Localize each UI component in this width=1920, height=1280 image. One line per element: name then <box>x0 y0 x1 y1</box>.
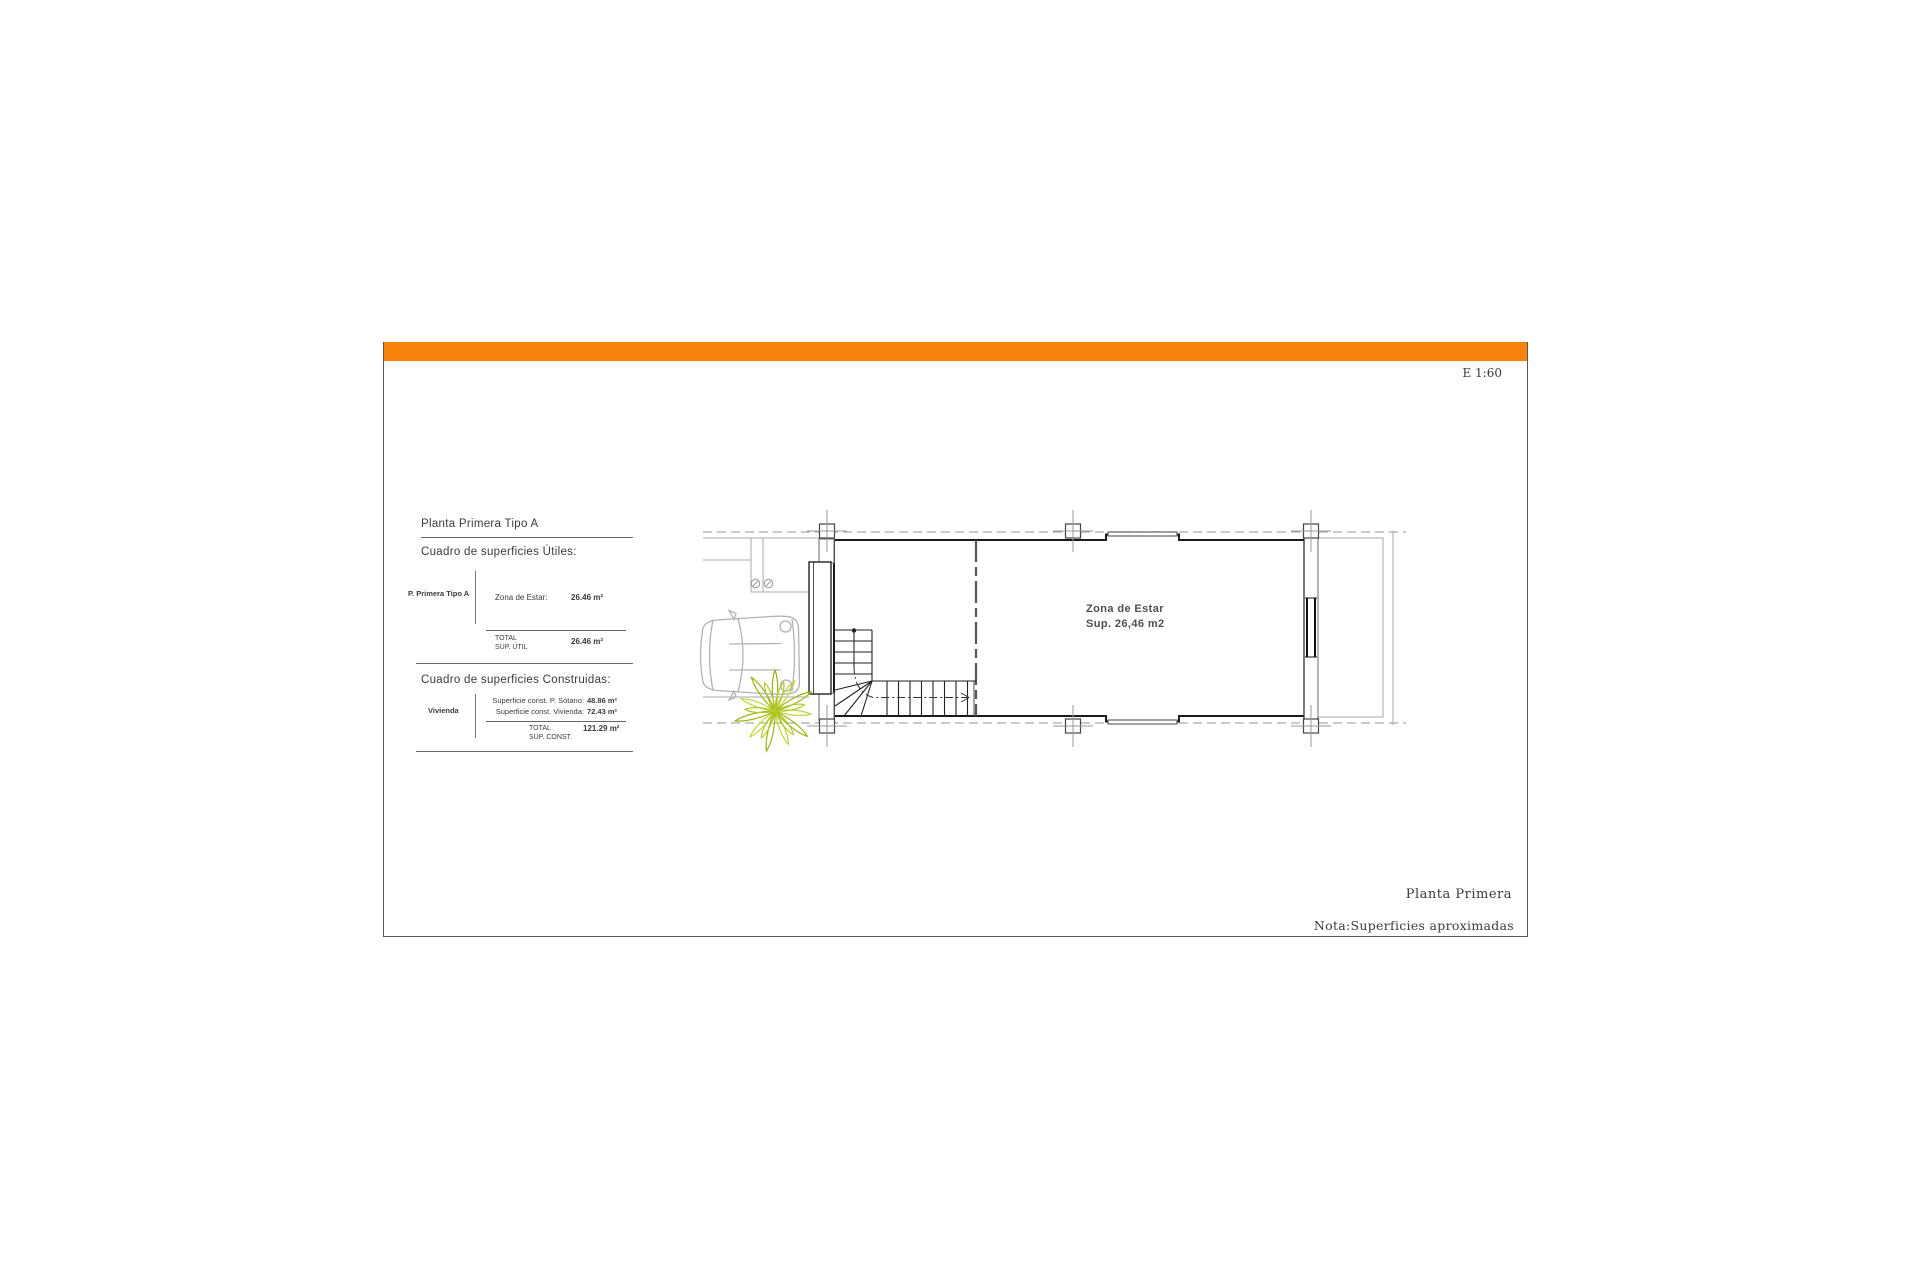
construidas-row-label: Superficie const. P. Sótano: <box>492 696 584 705</box>
construidas-row: Superficie const. Vivienda:72.43 m² <box>479 707 617 716</box>
construidas-total-label: TOTAL <box>529 725 551 732</box>
column-marker <box>1053 510 1093 552</box>
room-area-text: Sup. 26,46 m2 <box>1086 618 1165 630</box>
plan-name-label: Planta Primera <box>1406 887 1512 902</box>
utiles-total-sublabel: SUP. ÚTIL <box>495 644 528 651</box>
column-markers <box>807 510 1331 747</box>
room-name-text: Zona de Estar <box>1086 603 1164 615</box>
utiles-total-value: 26.46 m² <box>571 637 603 646</box>
divider <box>416 751 633 752</box>
stair-walk-line <box>854 634 969 702</box>
construidas-total-sublabel: SUP. CONST. <box>529 734 572 741</box>
column-marker <box>1053 705 1093 747</box>
construidas-row-value: 48.86 m² <box>587 696 617 705</box>
divider <box>475 694 476 738</box>
construidas-heading: Cuadro de superficies Construidas: <box>421 674 611 686</box>
utiles-row-value: 26.46 m² <box>571 593 603 602</box>
scale-label: E 1:60 <box>1462 366 1502 380</box>
accent-header-bar <box>384 342 1527 361</box>
garage-door <box>809 539 834 721</box>
utiles-group-label: P. Primera Tipo A <box>408 589 469 598</box>
right-pier <box>1304 525 1318 732</box>
floor-plan-drawing: Zona de Estar Sup. 26,46 m2 <box>691 500 1416 760</box>
utiles-heading: Cuadro de superficies Útiles: <box>421 546 577 558</box>
column-marker <box>1291 705 1331 747</box>
room-walls <box>834 535 1304 722</box>
construidas-total-value: 121.29 m² <box>583 724 619 733</box>
divider <box>486 721 626 722</box>
staircase <box>835 628 976 716</box>
room-label: Zona de Estar Sup. 26,46 m2 <box>1086 603 1165 630</box>
car-icon <box>701 611 800 701</box>
tables-title: Planta Primera Tipo A <box>421 518 539 530</box>
divider <box>416 663 633 664</box>
drawing-sheet: E 1:60 Planta Primera Tipo A Cuadro de s… <box>383 342 1528 937</box>
construidas-group-label: Vivienda <box>428 706 459 715</box>
construidas-row: Superficie const. P. Sótano:48.86 m² <box>479 696 617 705</box>
utiles-row-label: Zona de Estar: <box>495 593 547 602</box>
column-marker <box>807 510 847 552</box>
column-marker <box>1291 510 1331 552</box>
note-label: Nota:Superficies aproximadas <box>1314 918 1514 933</box>
construidas-row-value: 72.43 m² <box>587 707 617 716</box>
column-marker <box>807 705 847 747</box>
utility-meter-icon <box>751 579 772 587</box>
terrace-outline <box>1318 531 1393 725</box>
construidas-row-label: Superficie const. Vivienda: <box>496 707 584 716</box>
divider <box>486 630 626 631</box>
divider <box>475 571 476 624</box>
plant-icon <box>735 670 813 752</box>
utiles-total-label: TOTAL <box>495 635 517 642</box>
divider <box>421 537 633 538</box>
